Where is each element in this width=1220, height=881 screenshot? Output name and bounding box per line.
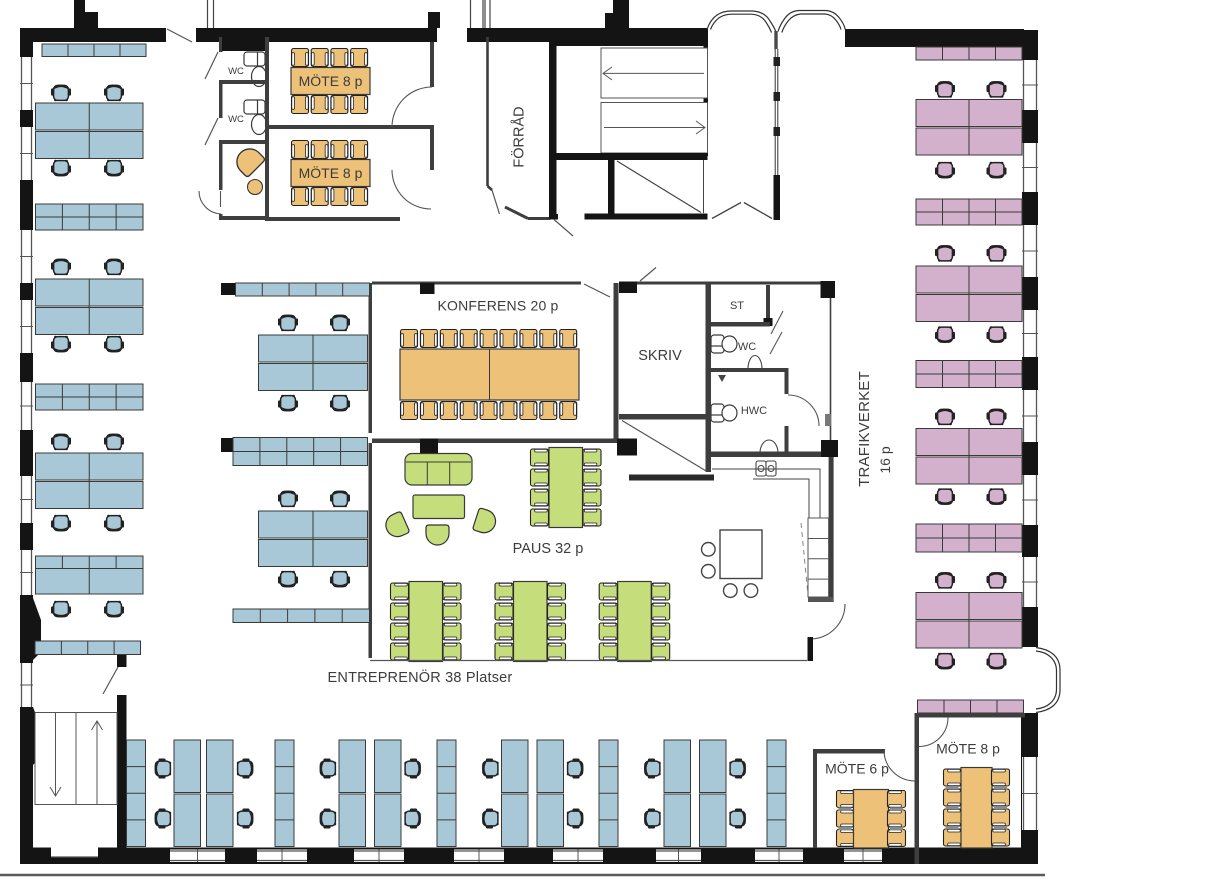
svg-text:MÖTE 8 p: MÖTE 8 p xyxy=(936,740,1000,757)
svg-text:WC: WC xyxy=(228,66,244,77)
svg-text:PAUS 32 p: PAUS 32 p xyxy=(513,541,584,557)
svg-text:FÖRRÅD: FÖRRÅD xyxy=(510,106,528,167)
svg-text:MÖTE 6 p: MÖTE 6 p xyxy=(825,760,889,777)
svg-text:16 p: 16 p xyxy=(877,446,893,473)
svg-text:KONFERENS 20 p: KONFERENS 20 p xyxy=(437,298,558,314)
svg-text:MÖTE 8 p: MÖTE 8 p xyxy=(299,72,363,89)
svg-text:MÖTE 8 p: MÖTE 8 p xyxy=(299,164,363,181)
svg-text:SKRIV: SKRIV xyxy=(638,348,682,364)
svg-text:HWC: HWC xyxy=(741,405,767,417)
svg-text:WC: WC xyxy=(738,341,756,353)
svg-text:ENTREPRENÖR 38 Platser: ENTREPRENÖR 38 Platser xyxy=(328,668,513,686)
svg-text:ST: ST xyxy=(730,300,744,312)
svg-text:WC: WC xyxy=(228,114,244,125)
svg-text:TRAFIKVERKET: TRAFIKVERKET xyxy=(856,371,873,487)
